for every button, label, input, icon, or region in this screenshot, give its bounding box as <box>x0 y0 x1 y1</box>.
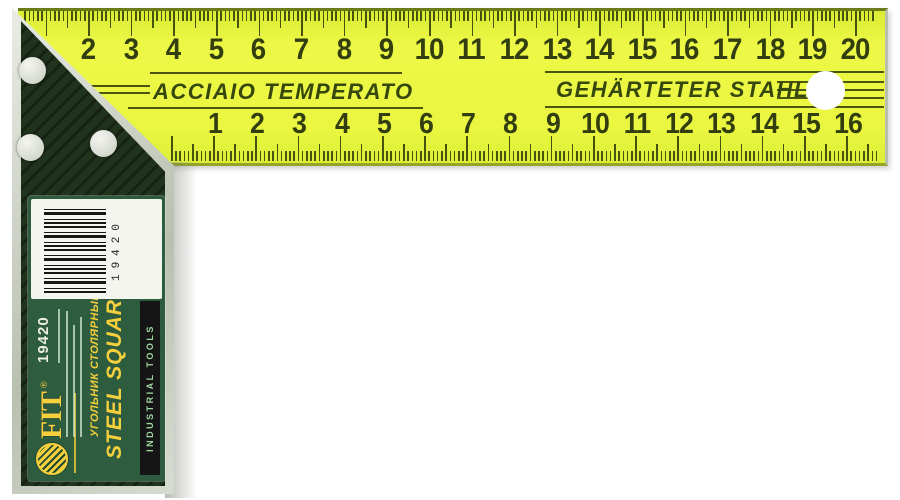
blade-number: 10 <box>414 33 443 67</box>
ruler-tick <box>403 144 405 161</box>
ruler-tick <box>305 11 307 21</box>
ruler-tick <box>625 11 627 21</box>
ruler-tick <box>778 11 780 21</box>
ruler-tick <box>757 11 759 21</box>
ruler-tick <box>365 151 367 161</box>
blade-number: 9 <box>379 33 393 67</box>
ruler-tick <box>54 11 56 21</box>
ruler-tick <box>169 11 171 21</box>
ruler-tick <box>408 11 410 28</box>
ruler-tick <box>365 11 367 28</box>
ruler-tick <box>466 136 468 161</box>
ruler-tick <box>762 136 764 161</box>
ruler-tick <box>357 151 359 161</box>
ruler-tick <box>804 136 806 161</box>
ruler-tick <box>787 11 789 21</box>
ruler-tick <box>306 151 308 161</box>
ruler-tick <box>188 151 190 161</box>
ruler-tick <box>661 151 663 161</box>
ruler-tick <box>293 11 295 21</box>
ruler-tick <box>386 151 388 161</box>
ruler-tick <box>297 11 299 21</box>
ruler-tick <box>251 151 253 161</box>
rivet <box>17 134 44 161</box>
ruler-tick <box>876 151 878 161</box>
ruler-tick <box>501 11 503 21</box>
ruler-tick <box>616 11 618 21</box>
industrial-tools-text: INDUSTRIAL TOOLS <box>145 324 155 452</box>
ruler-tick <box>855 151 857 161</box>
ruler-tick <box>361 11 363 21</box>
ruler-tick <box>281 151 283 161</box>
ruler-tick <box>438 11 440 21</box>
ruler-tick <box>859 11 861 21</box>
ruler-tick <box>817 151 819 161</box>
ruler-tick <box>314 11 316 21</box>
ruler-tick <box>374 11 376 21</box>
ruler-tick <box>165 11 167 21</box>
ruler-tick <box>834 11 836 28</box>
ruler-tick <box>454 151 456 161</box>
ruler-tick <box>445 144 447 161</box>
ruler-tick <box>450 11 452 28</box>
ruler-tick <box>680 11 682 21</box>
ruler-tick <box>872 11 874 21</box>
ruler-tick <box>63 11 65 21</box>
ruler-tick <box>479 151 481 161</box>
blade-text-german: GEHÄRTETER STAHL <box>556 77 809 103</box>
ruler-tick <box>720 136 722 161</box>
ruler-tick <box>250 11 252 21</box>
ruler-tick <box>420 151 422 161</box>
ruler-tick <box>264 151 266 161</box>
ruler-tick <box>673 151 675 161</box>
ruler-tick <box>416 151 418 161</box>
ruler-tick <box>391 11 393 21</box>
ruler-tick <box>84 11 86 21</box>
blade-number: 14 <box>585 33 614 67</box>
ruler-tick <box>212 11 214 21</box>
blade-number: 5 <box>209 33 223 67</box>
band-rule <box>86 85 150 87</box>
ruler-tick <box>808 151 810 161</box>
ruler-tick <box>732 151 734 161</box>
ruler-tick <box>462 151 464 161</box>
ruler-tick <box>652 151 654 161</box>
blade-number: 11 <box>458 33 485 67</box>
ruler-tick <box>412 151 414 161</box>
blade-number: 8 <box>336 33 350 67</box>
ruler-tick <box>838 11 840 21</box>
ruler-tick <box>587 11 589 21</box>
ruler-tick <box>80 11 82 21</box>
ruler-tick <box>369 11 371 21</box>
ruler-tick <box>551 136 553 161</box>
ruler-tick <box>677 136 679 161</box>
ruler-tick <box>378 151 380 161</box>
ruler-tick <box>574 11 576 21</box>
ruler-tick <box>260 151 262 161</box>
ruler-tick <box>585 151 587 161</box>
label-card: FIT ® 19420 УГОЛЬНИК СТОЛЯРНЫЙ STEEL SQU… <box>28 196 165 481</box>
fine-print-line <box>66 311 68 437</box>
ruler-tick <box>340 136 342 161</box>
ruler-tick <box>348 151 350 161</box>
ruler-tick <box>509 136 511 161</box>
ruler-tick <box>148 11 150 21</box>
ruler-tick <box>441 151 443 161</box>
ruler-tick <box>277 144 279 161</box>
ruler-tick <box>593 136 595 161</box>
ruler-tick <box>255 136 257 161</box>
ruler-tick <box>75 11 77 21</box>
ruler-tick <box>267 11 269 21</box>
ruler-tick <box>668 11 670 21</box>
ruler-tick <box>254 11 256 21</box>
ruler-tick <box>230 151 232 161</box>
ruler-tick <box>563 151 565 161</box>
product-label: FIT ® 19420 УГОЛЬНИК СТОЛЯРНЫЙ STEEL SQU… <box>28 196 165 481</box>
ruler-tick <box>352 11 354 21</box>
ruler-tick <box>390 151 392 161</box>
ruler-tick <box>344 151 346 161</box>
ruler-tick <box>800 11 802 21</box>
ruler-tick <box>610 151 612 161</box>
ruler-tick <box>693 11 695 21</box>
ruler-tick <box>226 151 228 161</box>
ruler-tick <box>340 11 342 21</box>
ruler-tick <box>110 11 112 28</box>
ruler-tick <box>513 151 515 161</box>
ruler-tick <box>335 11 337 21</box>
ruler-tick <box>196 151 198 161</box>
ruler-tick <box>298 136 300 161</box>
ruler-tick <box>504 151 506 161</box>
ruler-tick <box>663 11 665 28</box>
ruler-tick <box>766 11 768 21</box>
ruler-tick <box>201 151 203 161</box>
ruler-tick <box>205 151 207 161</box>
ruler-tick <box>796 151 798 161</box>
ruler-tick <box>676 11 678 21</box>
ruler-tick <box>318 11 320 21</box>
ruler-tick <box>591 11 593 21</box>
rivet <box>19 57 46 84</box>
ruler-tick <box>731 11 733 21</box>
ruler-tick <box>631 151 633 161</box>
ruler-tick <box>527 11 529 21</box>
ruler-tick <box>702 11 704 21</box>
band-rule <box>150 72 402 74</box>
ruler-tick <box>597 151 599 161</box>
ruler-tick <box>601 151 603 161</box>
ruler-tick <box>506 11 508 21</box>
ruler-tick <box>544 11 546 21</box>
brand-wordmark: FIT <box>37 392 67 439</box>
ruler-tick <box>703 151 705 161</box>
ruler-tick <box>714 11 716 21</box>
ruler-tick <box>633 11 635 21</box>
ruler-tick <box>608 11 610 21</box>
ruler-tick <box>648 151 650 161</box>
ruler-tick <box>314 151 316 161</box>
product-photo: 234567891011121314151617181920 ACCIAIO T… <box>0 0 900 500</box>
ruler-tick <box>97 11 99 21</box>
ruler-tick <box>217 151 219 161</box>
ruler-tick <box>745 151 747 161</box>
ruler-tick <box>175 151 177 161</box>
ruler-tick <box>589 151 591 161</box>
ruler-tick <box>171 136 173 161</box>
ruler-tick <box>521 151 523 161</box>
blade-number: 20 <box>840 33 869 67</box>
ruler-tick <box>517 151 519 161</box>
ruler-tick <box>178 11 180 21</box>
ruler-tick <box>233 11 235 21</box>
ruler-tick <box>867 144 869 161</box>
ruler-tick <box>382 11 384 21</box>
ruler-tick <box>459 11 461 21</box>
ruler-tick <box>234 144 236 161</box>
ruler-tick <box>851 11 853 21</box>
ruler-tick <box>644 151 646 161</box>
ruler-tick <box>416 11 418 21</box>
blade-number: 2 <box>81 33 95 67</box>
ruler-tick <box>547 151 549 161</box>
ruler-tick <box>46 11 48 36</box>
ruler-tick <box>433 11 435 21</box>
ruler-tick <box>728 151 730 161</box>
ruler-tick <box>209 151 211 161</box>
ruler-tick <box>753 11 755 21</box>
ruler-tick <box>455 11 457 21</box>
ruler-tick <box>496 151 498 161</box>
ruler-tick <box>800 151 802 161</box>
ruler-tick <box>812 151 814 161</box>
ruler-tick <box>288 11 290 21</box>
fit-logo: FIT ® <box>36 381 68 475</box>
ruler-tick <box>808 11 810 21</box>
blade-number: 17 <box>713 33 742 67</box>
ruler-tick <box>821 151 823 161</box>
ruler-tick <box>310 11 312 21</box>
ruler-tick <box>420 11 422 21</box>
blade-number: 6 <box>251 33 265 67</box>
ruler-tick <box>863 151 865 161</box>
ruler-tick <box>357 11 359 21</box>
ruler-tick <box>195 11 197 28</box>
ruler-tick <box>225 11 227 21</box>
ruler-tick <box>829 11 831 21</box>
ruler-tick <box>161 11 163 21</box>
ruler-tick <box>614 144 616 161</box>
fine-print-line <box>80 317 82 437</box>
ruler-tick <box>829 151 831 161</box>
ruler-tick <box>555 151 557 161</box>
ruler-tick <box>476 11 478 21</box>
ruler-tick <box>424 136 426 161</box>
ruler-tick <box>736 151 738 161</box>
ruler-tick <box>395 11 397 21</box>
ruler-tick <box>699 144 701 161</box>
ruler-tick <box>493 11 495 28</box>
ruler-tick <box>243 151 245 161</box>
ruler-tick <box>582 11 584 21</box>
ruler-tick <box>475 151 477 161</box>
ruler-tick <box>327 11 329 21</box>
ruler-tick <box>711 151 713 161</box>
ruler-tick <box>310 151 312 161</box>
ruler-tick <box>237 11 239 28</box>
ruler-tick <box>361 144 363 161</box>
ruler-tick <box>694 151 696 161</box>
hanging-hole <box>806 71 845 110</box>
ruler-tick <box>766 151 768 161</box>
ruler-tick <box>606 151 608 161</box>
ruler-tick <box>500 151 502 161</box>
ruler-tick <box>568 151 570 161</box>
ruler-tick <box>239 151 241 161</box>
ruler-tick <box>656 144 658 161</box>
ruler-tick <box>284 11 286 21</box>
ruler-tick <box>33 11 35 21</box>
ruler-tick <box>399 11 401 21</box>
ruler-tick <box>538 151 540 161</box>
ruler-tick <box>156 11 158 21</box>
ruler-tick <box>846 136 848 161</box>
ruler-tick <box>29 11 31 21</box>
ruler-tick <box>50 11 52 21</box>
blade-number: 3 <box>123 33 137 67</box>
ruler-tick <box>433 151 435 161</box>
ruler-tick <box>184 151 186 161</box>
ruler-tick <box>682 151 684 161</box>
ruler-tick <box>428 151 430 161</box>
ruler-tick <box>268 151 270 161</box>
ruler-tick <box>497 11 499 21</box>
ruler-tick <box>374 151 376 161</box>
registered-mark: ® <box>39 381 49 388</box>
ruler-tick <box>122 11 124 21</box>
ruler-tick <box>480 11 482 21</box>
ruler-tick <box>331 11 333 21</box>
ruler-tick <box>289 151 291 161</box>
ruler-tick <box>627 151 629 161</box>
ruler-tick <box>838 151 840 161</box>
ruler-tick <box>247 151 249 161</box>
ruler-tick <box>144 11 146 21</box>
ruler-tick <box>665 151 667 161</box>
ruler-tick <box>821 11 823 21</box>
ruler-tick <box>483 151 485 161</box>
ruler-tick <box>595 11 597 21</box>
ruler-tick <box>612 11 614 21</box>
ruler-tick <box>182 11 184 21</box>
ruler-tick <box>672 11 674 21</box>
ruler-tick <box>783 11 785 21</box>
ruler-tick <box>758 151 760 161</box>
ruler-tick <box>186 11 188 21</box>
ruler-tick <box>842 151 844 161</box>
blade-number: 15 <box>627 33 656 67</box>
ruler-tick <box>761 11 763 21</box>
ruler-tick <box>348 11 350 21</box>
ruler-tick <box>825 144 827 161</box>
fine-print-line <box>58 309 60 363</box>
ruler-tick <box>724 151 726 161</box>
ruler-tick <box>323 151 325 161</box>
ruler-tick <box>578 11 580 28</box>
ruler-tick <box>749 151 751 161</box>
ruler-tick <box>572 144 574 161</box>
ruler-tick <box>192 144 194 161</box>
ruler-tick <box>407 151 409 161</box>
ruler-tick <box>706 11 708 28</box>
ruler-tick <box>783 144 785 161</box>
blade-number: 19 <box>798 33 827 67</box>
ruler-tick <box>697 11 699 21</box>
ruler-tick <box>779 151 781 161</box>
ruler-tick <box>395 151 397 161</box>
ruler-tick <box>817 11 819 21</box>
ruler-tick <box>842 11 844 21</box>
ruler-tick <box>639 151 641 161</box>
ruler-tick <box>825 11 827 21</box>
blade-number: 13 <box>542 33 571 67</box>
ruler-tick <box>471 151 473 161</box>
ruler-tick <box>331 151 333 161</box>
ruler-tick <box>127 11 129 21</box>
blade-number: 4 <box>166 33 180 67</box>
fine-print-line <box>73 325 75 437</box>
ruler-tick <box>437 151 439 161</box>
ruler-tick <box>518 11 520 21</box>
ruler-tick <box>199 11 201 21</box>
ruler-tick <box>467 11 469 21</box>
ruler-tick <box>492 151 494 161</box>
ruler-tick <box>770 151 772 161</box>
ruler-tick <box>488 144 490 161</box>
ruler-tick <box>846 11 848 21</box>
ruler-tick <box>530 144 532 161</box>
ruler-tick <box>229 11 231 21</box>
product-name-english: STEEL SQUARE <box>103 284 127 459</box>
ruler-tick <box>791 151 793 161</box>
ruler-tick <box>850 151 852 161</box>
barcode-digits: 19420 <box>111 206 123 293</box>
ruler-tick <box>531 11 533 21</box>
ruler-tick <box>741 144 743 161</box>
ruler-tick <box>715 151 717 161</box>
blade-number: 12 <box>500 33 529 67</box>
ruler-tick <box>859 151 861 161</box>
ruler-tick <box>139 11 141 21</box>
ruler-tick <box>638 11 640 21</box>
ruler-tick <box>536 11 538 28</box>
industrial-tools-bar: INDUSTRIAL TOOLS <box>140 301 160 475</box>
ruler-tick <box>114 11 116 21</box>
ruler-tick <box>604 11 606 21</box>
ruler-tick <box>774 151 776 161</box>
ruler-tick <box>525 151 527 161</box>
ruler-tick <box>242 11 244 21</box>
ruler-tick <box>323 11 325 28</box>
ruler-tick <box>152 11 154 28</box>
ruler-tick <box>523 11 525 21</box>
ruler-tick <box>740 11 742 21</box>
ruler-tick <box>510 11 512 21</box>
ruler-tick <box>399 151 401 161</box>
